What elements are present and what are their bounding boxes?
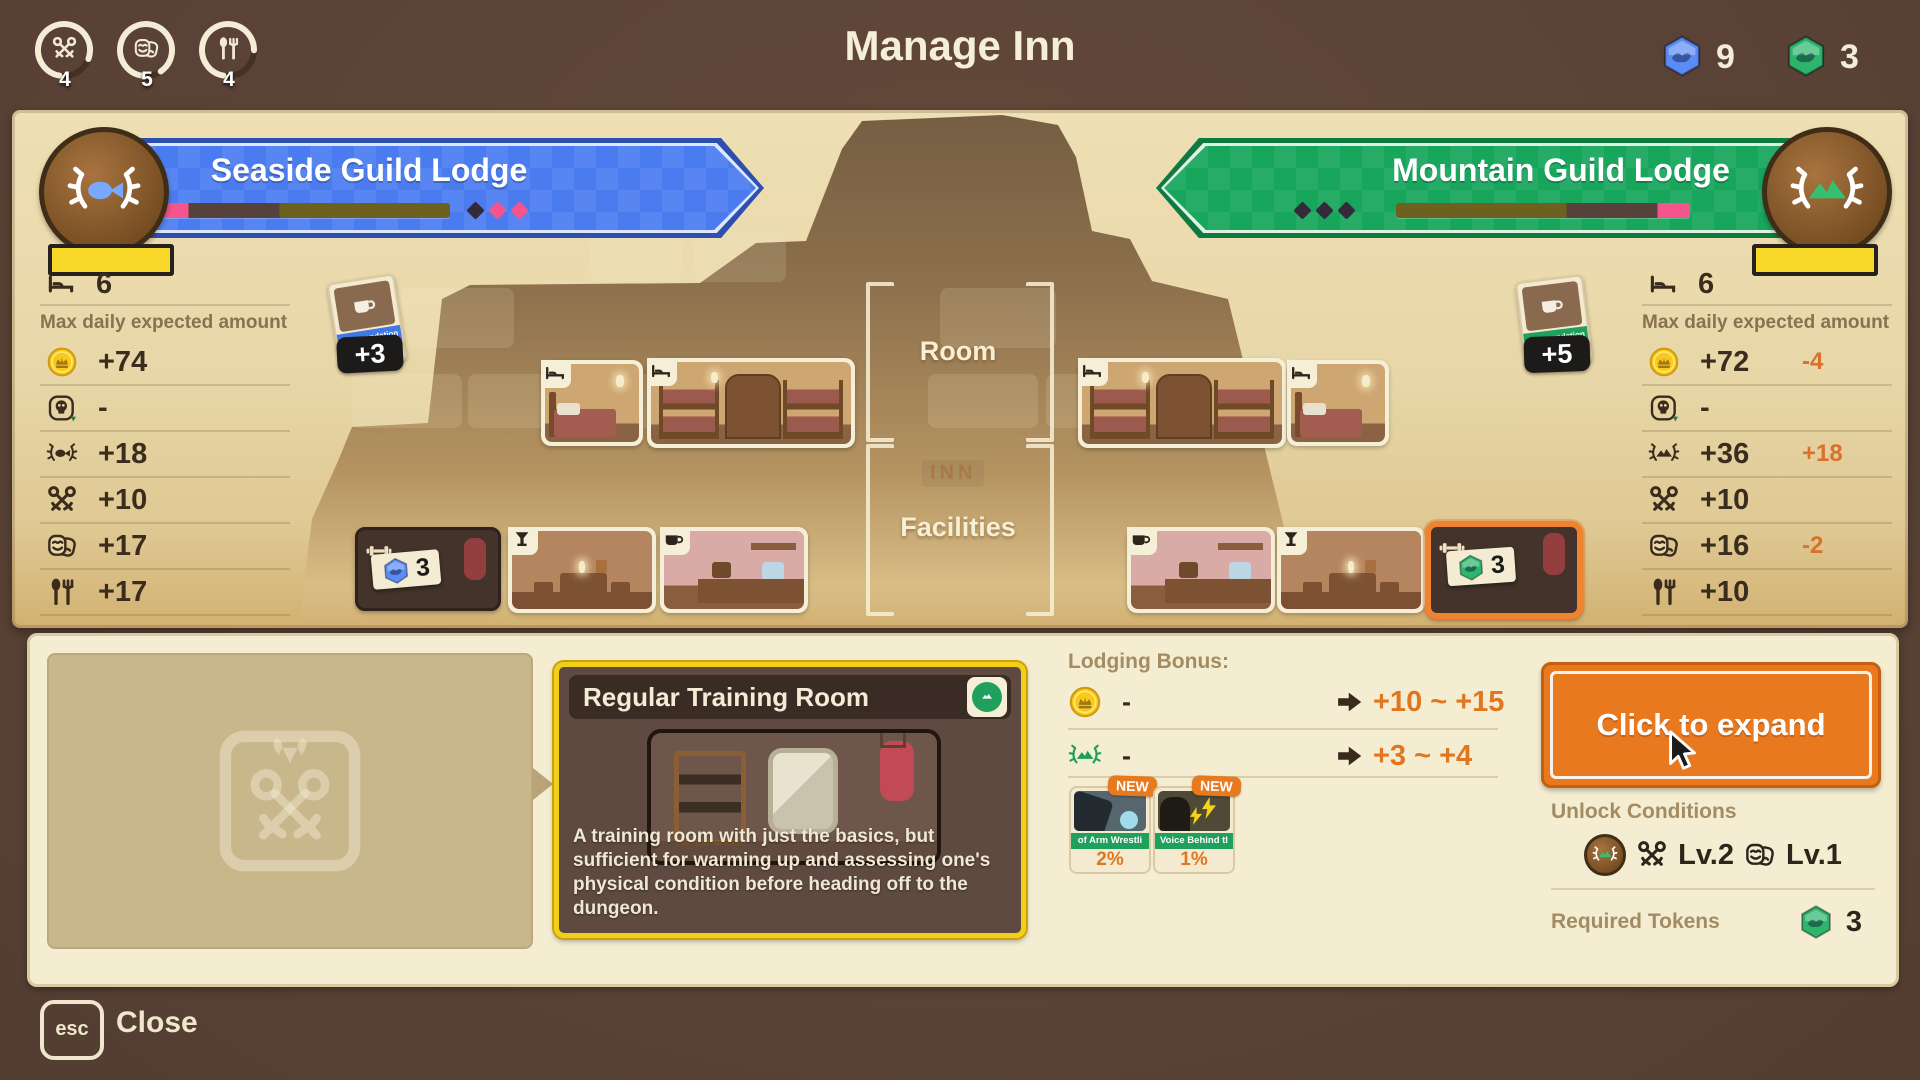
stat-value: +16 — [1700, 530, 1749, 563]
unlock-conditions-row: Lv.2 Lv.1 — [1551, 834, 1875, 876]
keys-icon — [1636, 839, 1668, 871]
pillow — [1303, 403, 1326, 415]
door — [1156, 374, 1212, 439]
room-section-label: Room — [878, 336, 1038, 367]
previous-facility-placeholder — [47, 653, 533, 949]
silhouette — [1074, 791, 1114, 831]
max-daily-label: Max daily expected amount — [1642, 306, 1892, 340]
required-tokens-row: Required Tokens 3 — [1551, 900, 1875, 944]
green-token-icon — [1784, 34, 1828, 78]
bonus-card-image — [1158, 791, 1230, 831]
stat-delta: -2 — [1802, 532, 1823, 560]
kettle — [1229, 562, 1251, 579]
stat-value: - — [98, 392, 108, 425]
candle — [1362, 375, 1370, 387]
facility-title: Regular Training Room — [583, 675, 869, 719]
token-cost: 3 — [1490, 550, 1506, 580]
lightning-bolt — [1190, 807, 1202, 825]
blue-token-count: 9 — [1716, 38, 1735, 77]
bonus-card-title: Voice Behind tl — [1155, 833, 1233, 849]
stat-row-skull: - — [40, 386, 290, 432]
coin-icon — [1648, 346, 1680, 378]
inn-sign: INN — [922, 460, 984, 487]
lodge-name: Mountain Guild Lodge — [1346, 152, 1776, 189]
bed-count-row: 6 — [40, 264, 290, 306]
bunk-bed — [1090, 380, 1150, 439]
commendation-image — [1522, 281, 1583, 331]
mountain-commendation-bonus: +5 — [1523, 335, 1590, 373]
shelf — [1218, 543, 1263, 549]
bonus-card-image — [1074, 791, 1146, 831]
masks-icon — [46, 530, 78, 562]
masks-icon — [1744, 839, 1776, 871]
manage-inn-screen: 4 5 4 Manage Inn 9 3 INN — [0, 0, 1920, 1080]
jar — [1179, 562, 1199, 578]
beer-mug — [596, 560, 607, 573]
empty-slot — [352, 374, 462, 428]
masks-icon — [1648, 530, 1680, 562]
mirror — [768, 748, 838, 834]
green-token-icon — [1798, 904, 1834, 940]
facility-type-chip — [508, 527, 538, 555]
room-type-chip — [1078, 358, 1108, 386]
candle — [1348, 561, 1354, 573]
facility-description: A training room with just the basics, bu… — [573, 825, 1009, 921]
arrow-right-icon — [1335, 741, 1365, 771]
new-badge: NEW — [1108, 775, 1157, 797]
stat-delta: +18 — [1802, 440, 1843, 468]
bed-icon — [544, 362, 566, 384]
keys-level: Lv.2 — [1678, 839, 1734, 872]
facility-card-tavern[interactable] — [508, 527, 656, 613]
close-button[interactable]: Close — [116, 1006, 198, 1040]
laurel-fish-emblem-icon — [66, 154, 142, 230]
stool — [1380, 582, 1398, 601]
table — [1329, 573, 1377, 601]
door — [725, 374, 781, 439]
bonus-card-percent: 2% — [1071, 849, 1149, 871]
stat-row-coin: +72 -4 — [1642, 340, 1892, 386]
meter-value: 4 — [196, 68, 262, 92]
bonus-card-voice-behind[interactable]: Voice Behind tl 1% NEW — [1153, 786, 1235, 874]
punching-bag — [880, 741, 914, 801]
bed-count: 6 — [96, 268, 112, 301]
bed-icon — [46, 269, 76, 299]
stat-value: +36 — [1700, 438, 1749, 471]
stool — [1303, 582, 1321, 601]
lodge-affiliation-badge — [967, 677, 1007, 717]
empty-room-slot — [398, 288, 514, 348]
stat-value: +10 — [98, 484, 147, 517]
meter-value: 4 — [32, 68, 98, 92]
blue-creature — [1120, 811, 1138, 829]
pillow — [557, 403, 580, 415]
stool — [534, 582, 552, 601]
bunk-bed — [783, 380, 843, 439]
coin-icon — [46, 346, 78, 378]
room-type-chip — [647, 358, 677, 386]
facility-type-chip — [1127, 527, 1157, 555]
unlock-conditions-label: Unlock Conditions — [1551, 800, 1737, 824]
lodging-bonus-label: Lodging Bonus: — [1068, 650, 1229, 674]
mountain-lodge-mini-emblem — [1584, 834, 1626, 876]
token-cost: 3 — [415, 553, 431, 583]
coin-icon — [1068, 685, 1102, 719]
goblet-icon — [511, 529, 533, 551]
required-tokens-count: 3 — [1846, 906, 1862, 939]
room-image — [1082, 362, 1282, 444]
room-card-single[interactable] — [1287, 360, 1389, 446]
esc-key-label: esc — [55, 1018, 88, 1040]
laurel-mountain-icon — [1068, 739, 1102, 773]
seaside-progress-bar — [156, 203, 450, 218]
mountain-lodge-emblem — [1762, 127, 1892, 257]
bonus-range: +3 ~ +4 — [1373, 740, 1472, 773]
seaside-stats-panel: 6 Max daily expected amount +74 - +18 +1… — [40, 264, 290, 616]
candle — [616, 375, 624, 387]
candle — [1142, 372, 1149, 383]
bonus-row-laurel: - +3 ~ +4 — [1068, 734, 1528, 778]
bunk-bed — [1214, 380, 1274, 439]
cup-icon — [1538, 292, 1567, 321]
facility-card-coffee[interactable] — [1127, 527, 1275, 613]
bed-icon — [1081, 360, 1103, 382]
bonus-card-arm-wrestling[interactable]: of Arm Wrestli 2% NEW — [1069, 786, 1151, 874]
stat-row-masks: +17 — [40, 524, 290, 570]
stat-value: +10 — [1700, 484, 1749, 517]
laurel-fish-icon — [46, 438, 78, 470]
stat-row-laurel: +36 +18 — [1642, 432, 1892, 478]
bed-icon — [1290, 362, 1312, 384]
detail-panel: Regular Training Room A training room wi… — [27, 633, 1899, 987]
bed-count: 6 — [1698, 268, 1714, 301]
page-title: Manage Inn — [0, 22, 1920, 70]
mountain-lodge-banner: Mountain Guild Lodge — [1156, 138, 1816, 238]
bonus-card-title: of Arm Wrestli — [1071, 833, 1149, 849]
facility-card-coffee[interactable] — [660, 527, 808, 613]
room-card-single[interactable] — [541, 360, 643, 446]
bed-count-row: 6 — [1642, 264, 1892, 306]
stat-delta: -4 — [1802, 348, 1823, 376]
stat-value: +17 — [98, 530, 147, 563]
stat-row-masks: +16 -2 — [1642, 524, 1892, 570]
stat-row-keys: +10 — [1642, 478, 1892, 524]
bed-icon — [650, 360, 672, 382]
divider — [1068, 728, 1498, 730]
stat-value: - — [1700, 392, 1710, 425]
cup-icon — [1130, 529, 1152, 551]
seaside-lodge-emblem — [39, 127, 169, 257]
cup-icon — [350, 291, 380, 321]
utensils-icon — [1648, 576, 1680, 608]
bonus-row-coin: - +10 ~ +15 — [1068, 680, 1528, 724]
cup-icon — [663, 529, 685, 551]
facility-type-chip — [660, 527, 690, 555]
room-card-bunks[interactable] — [1078, 358, 1286, 448]
progression-arrow-icon — [533, 768, 553, 800]
bed-icon — [1648, 269, 1678, 299]
utensils-icon — [46, 576, 78, 608]
kettle — [762, 562, 784, 579]
green-token-icon — [1456, 552, 1486, 582]
close-label: Close — [116, 1006, 198, 1039]
bonus-current: - — [1122, 687, 1131, 718]
keys-icon — [1648, 484, 1680, 516]
stat-value: +74 — [98, 346, 147, 379]
empty-slot — [928, 374, 1038, 428]
meter-value: 5 — [114, 68, 180, 92]
skull-icon — [46, 392, 78, 424]
counter — [698, 579, 804, 602]
facilities-section-label: Facilities — [878, 512, 1038, 543]
room-type-chip — [541, 360, 571, 388]
laurel-mountain-icon — [1648, 438, 1680, 470]
punching-bag — [1543, 533, 1565, 575]
arrow-right-icon — [1335, 687, 1365, 717]
bonus-range: +10 ~ +15 — [1373, 686, 1504, 719]
keys-icon — [46, 484, 78, 516]
lightning-bolt — [1202, 797, 1216, 819]
expand-button-label: Click to expand — [1596, 707, 1825, 743]
badge-circle — [972, 682, 1002, 712]
blue-token-icon — [1660, 34, 1704, 78]
mouse-cursor-icon — [1661, 729, 1707, 775]
divider — [1551, 888, 1875, 890]
seaside-commendation-bonus: +3 — [336, 334, 404, 373]
max-daily-label: Max daily expected amount — [40, 306, 290, 340]
laurel-mountain-emblem-icon — [1592, 842, 1618, 868]
expand-button[interactable]: Click to expand — [1541, 662, 1881, 788]
counter — [1165, 579, 1271, 602]
mountain-stats-panel: 6 Max daily expected amount +72 -4 - +36… — [1642, 264, 1892, 616]
esc-key[interactable]: esc — [40, 1000, 104, 1060]
candle — [579, 561, 585, 573]
stat-value: +10 — [1700, 576, 1749, 609]
mountain-icon — [977, 687, 997, 707]
new-badge: NEW — [1192, 775, 1241, 797]
stat-value: +72 — [1700, 346, 1749, 379]
room-type-chip — [1287, 360, 1317, 388]
seaside-lodge-banner: Seaside Guild Lodge — [104, 138, 764, 238]
stat-row-laurel: +18 — [40, 432, 290, 478]
facility-card-training-selected[interactable]: 3 — [1425, 521, 1583, 619]
facility-card-tavern[interactable] — [1277, 527, 1425, 613]
bonus-card-percent: 1% — [1155, 849, 1233, 871]
bunk-bed — [659, 380, 719, 439]
jar — [712, 562, 732, 578]
stat-row-keys: +10 — [40, 478, 290, 524]
room-image — [651, 362, 851, 444]
lodge-name: Seaside Guild Lodge — [154, 152, 584, 189]
green-token-count: 3 — [1840, 38, 1859, 77]
laurel-mountain-emblem-icon — [1789, 154, 1865, 230]
guild-keys-watermark-icon — [195, 706, 385, 896]
facility-detail-card: Regular Training Room A training room wi… — [554, 662, 1026, 938]
stool — [611, 582, 629, 601]
candle — [711, 372, 718, 383]
stat-row-coin: +74 — [40, 340, 290, 386]
stat-row-utensils: +10 — [1642, 570, 1892, 616]
table — [560, 573, 608, 601]
stat-row-utensils: +17 — [40, 570, 290, 616]
blue-token-icon — [381, 555, 411, 585]
room-card-bunks[interactable] — [647, 358, 855, 448]
mountain-progress-bar — [1396, 203, 1690, 218]
facility-card-training-locked[interactable]: 3 — [355, 527, 501, 611]
stat-value: +18 — [98, 438, 147, 471]
skull-icon — [1648, 392, 1680, 424]
shelf — [751, 543, 796, 549]
masks-level: Lv.1 — [1786, 839, 1842, 872]
silhouette — [1160, 797, 1190, 831]
bonus-current: - — [1122, 741, 1131, 772]
facility-type-chip — [1277, 527, 1307, 555]
unlock-cost-ticket: 3 — [371, 549, 442, 590]
beer-mug — [1365, 560, 1376, 573]
stat-row-skull: - — [1642, 386, 1892, 432]
stat-value: +17 — [98, 576, 147, 609]
required-tokens-label: Required Tokens — [1551, 910, 1720, 934]
detail-title-bar: Regular Training Room — [569, 675, 1011, 719]
unlock-cost-ticket: 3 — [1446, 547, 1516, 587]
bag-chain — [880, 733, 906, 748]
goblet-icon — [1280, 529, 1302, 551]
inn-overview-panel: INN Seaside Guild Lodge Mountain Guild L… — [12, 110, 1908, 628]
punching-bag — [464, 538, 486, 580]
commendation-image — [333, 280, 395, 332]
